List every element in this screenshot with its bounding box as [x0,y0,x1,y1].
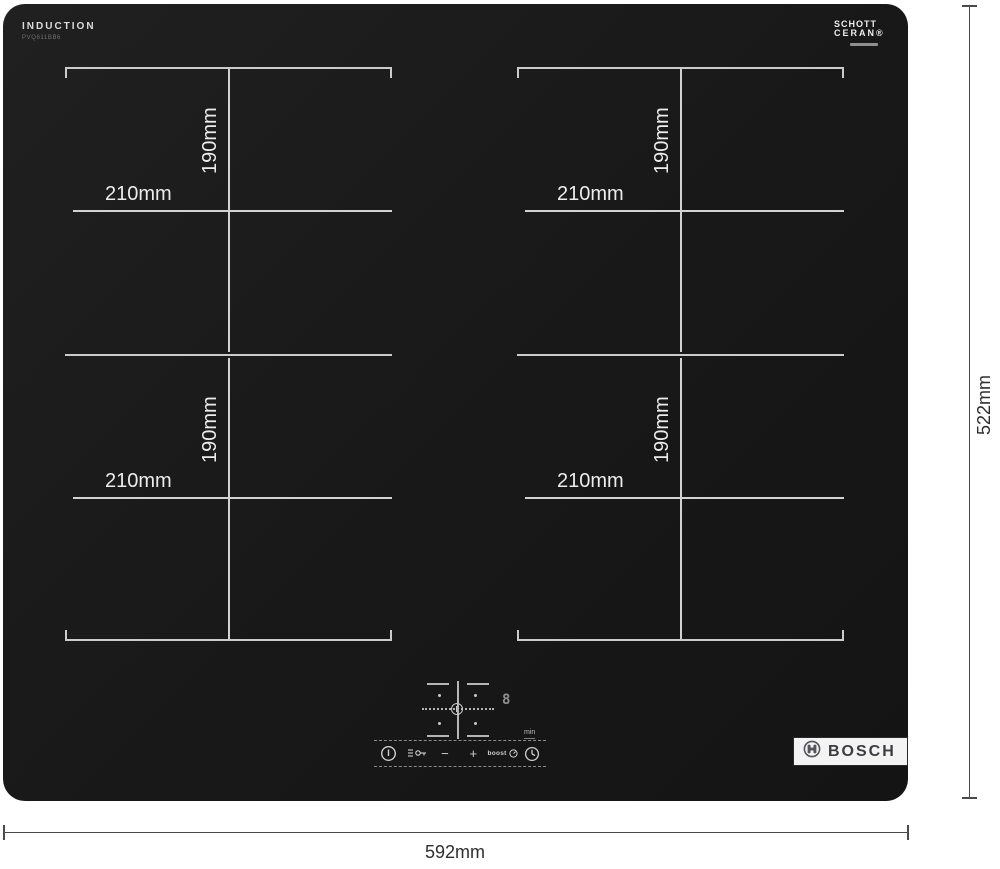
timer-clock-icon [524,746,540,762]
minus-button[interactable]: − [431,741,459,766]
schott-logo-line2: CERAN® [834,29,890,38]
zone-width-label: 210mm [557,470,624,493]
induction-hob-glass: INDUCTION PVQ611BB6 SCHOTT CERAN® 210mm … [3,4,908,801]
minus-label: − [441,746,449,761]
width-dimension-line [3,832,908,833]
zone-indicator-dot [474,722,477,725]
schott-logo-subtext-bar [850,43,878,46]
zone-indicator-dash [427,683,449,685]
zone-divider-line [517,354,844,356]
zone-height-label: 190mm [651,380,677,480]
height-dimension-cap-top [962,5,977,7]
bosch-logo-text: BOSCH [828,743,896,761]
zone-height-label: 190mm [199,380,225,480]
selector-center-icon[interactable] [451,703,463,715]
zone-width-label: 210mm [105,183,172,206]
zone-center-hline [73,497,392,499]
power-level-display: 8 [502,692,510,708]
zone-selector-diagram [422,681,494,739]
height-dimension-label: 522mm [974,355,995,455]
zone-height-label: 190mm [199,91,225,191]
zone-width-label: 210mm [557,183,624,206]
height-dimension-text: 522mm [974,375,995,435]
key-lock-icon [407,747,427,761]
zone-center-hline [73,210,392,212]
model-number: PVQ611BB6 [22,35,96,41]
childlock-button[interactable] [402,741,430,766]
zone-indicator-dash [467,683,489,685]
zone-group-left: 210mm 190mm 210mm 190mm [65,67,392,641]
bosch-logo-badge: BOSCH [793,737,908,766]
induction-branding: INDUCTION PVQ611BB6 [22,21,96,41]
zone-bracket-bottom [517,630,844,641]
induction-title: INDUCTION [22,21,96,32]
width-dimension-cap-left [3,825,5,840]
zone-divider-line [65,354,392,356]
plus-label: + [469,746,477,761]
power-button[interactable] [374,741,402,766]
timer-button[interactable] [518,741,546,766]
width-dimension-cap-right [907,825,909,840]
zone-center-hline [525,210,844,212]
zone-indicator-dot [438,722,441,725]
zone-width-label: 210mm [105,470,172,493]
zone-height-label: 190mm [651,91,677,191]
zone-indicator-dash [467,735,489,737]
height-dimension-line [969,5,970,798]
touch-control-row: − + boost [374,740,546,767]
zone-bracket-bottom [65,630,392,641]
width-dimension-label: 592mm [400,842,510,863]
zone-center-hline [525,497,844,499]
power-icon [380,745,397,762]
zone-indicator-dot [474,694,477,697]
boost-gauge-icon [509,749,518,758]
product-dimension-diagram: INDUCTION PVQ611BB6 SCHOTT CERAN® 210mm … [0,0,1000,869]
height-dimension-cap-bottom [962,797,977,799]
plus-button[interactable]: + [459,741,487,766]
schott-ceran-logo: SCHOTT CERAN® [834,20,890,46]
zone-group-right: 210mm 190mm 210mm 190mm [517,67,844,641]
boost-button[interactable]: boost [487,741,517,766]
zone-indicator-dot [438,694,441,697]
zone-indicator-dash [427,735,449,737]
bosch-symbol-icon [803,740,821,763]
boost-label: boost [487,750,506,757]
timer-min-label: min [524,729,535,739]
